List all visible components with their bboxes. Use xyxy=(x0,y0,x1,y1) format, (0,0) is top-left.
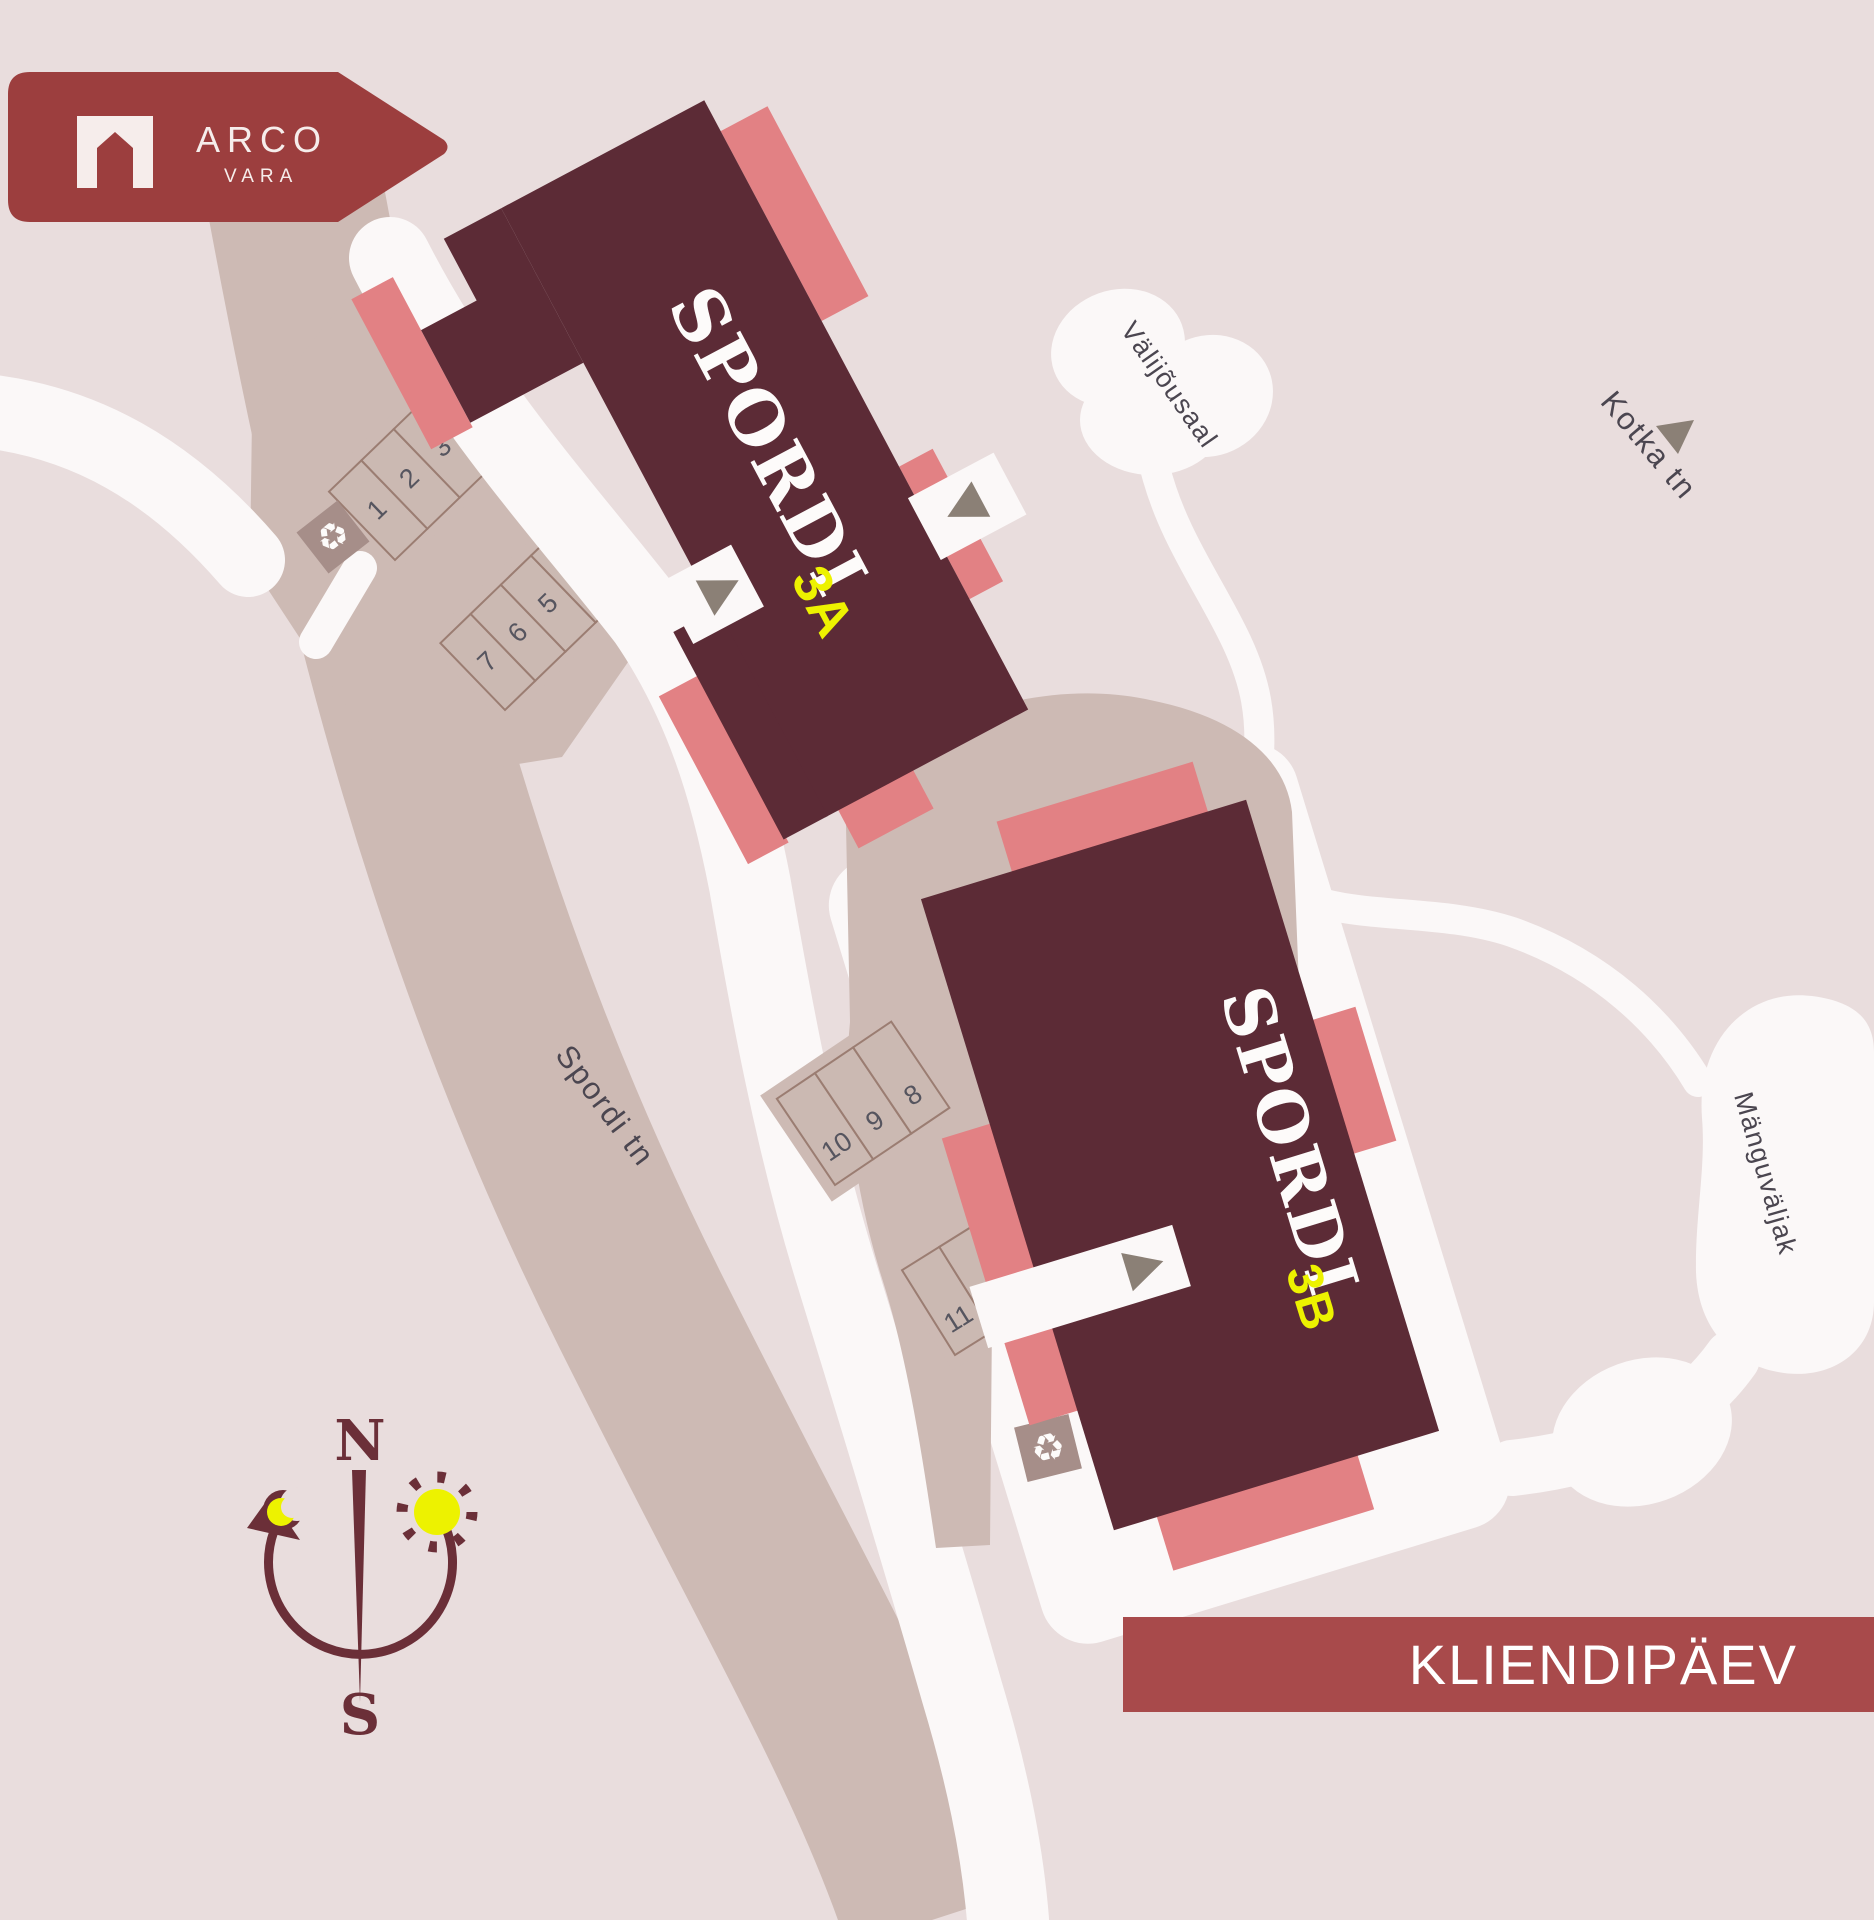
event-banner-label: KLIENDIPÄEV xyxy=(1409,1632,1798,1697)
arco-vara-badge: ARCO VARA xyxy=(8,72,454,227)
brand-sub: VARA xyxy=(224,166,298,187)
south-label: S xyxy=(340,1682,380,1748)
sun-disc xyxy=(414,1489,460,1535)
house-icon xyxy=(77,116,153,188)
moon-disc-cut xyxy=(281,1496,303,1518)
event-banner: KLIENDIPÄEV xyxy=(1123,1617,1874,1712)
north-label: N xyxy=(334,1408,385,1474)
site-plan-page: 1 2 3 7 6 5 4 ♻ xyxy=(0,0,1874,1920)
brand-name: ARCO xyxy=(196,119,328,160)
